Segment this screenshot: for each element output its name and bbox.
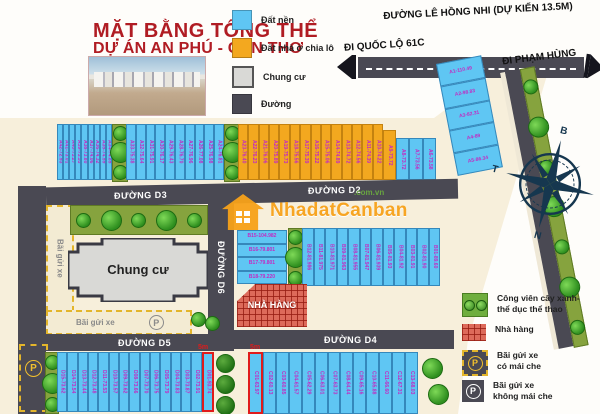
- lot: D11-73.53: [98, 352, 108, 412]
- tree-icon: [76, 213, 91, 228]
- lot-row-a-blue-right: A33-75.38A32-75.64A31-75.91A30-76.17A29-…: [126, 124, 224, 180]
- legend-park-line1: Công viên cây xanh-: [497, 293, 580, 303]
- chung-cu-label: Chung cư: [68, 262, 208, 277]
- p-icon: P: [468, 356, 483, 371]
- road-label-d2: ĐƯỜNG D2: [308, 185, 361, 196]
- tree-icon: [131, 213, 146, 228]
- road-d4: ĐƯỜNG D4: [232, 330, 454, 349]
- lot: A26-77.08: [195, 124, 205, 180]
- lot: A8-73.72: [396, 138, 409, 180]
- arrow-right-icon: [583, 54, 600, 80]
- lot: A32-75.64: [136, 124, 146, 180]
- lot-row-a-blue-left: A42-72.93A41-73.01A40-73.27A39-73.53A38-…: [57, 124, 112, 180]
- legend-park-label: Công viên cây xanh- thể dục thể thao: [497, 293, 580, 314]
- lot: B16-79.801: [237, 244, 287, 258]
- tree-icon: [476, 300, 487, 311]
- road-label-d3: ĐƯỜNG D3: [114, 190, 167, 201]
- lot: A9-73.72: [383, 130, 396, 180]
- lot: B02-81.90: [417, 228, 429, 286]
- lot: B06-81.939: [371, 228, 383, 286]
- lot: D07-73.70: [140, 352, 150, 412]
- lot: B11-81.975: [314, 228, 326, 286]
- lot: B17-79.801: [237, 257, 287, 271]
- legend-item-dat-nen: Đất nền: [232, 10, 294, 30]
- lot-row-a-orange: A23-76.40A22-76.23A21-76.06A20-75.89A19-…: [238, 124, 383, 180]
- lot: A13-74.72: [342, 124, 352, 180]
- lot: C06-63.01: [315, 352, 328, 414]
- legend-swatch-dark: [232, 94, 252, 114]
- tree-icon: [522, 78, 540, 96]
- lot: D15-73.62: [57, 352, 67, 412]
- lot: A21-76.06: [259, 124, 269, 180]
- lot-row-c: C01-63.97C02-60.13C03-60.85C04-61.57C05-…: [248, 352, 418, 414]
- lot: C03-60.85: [276, 352, 289, 414]
- legend-item-duong: Đường: [232, 94, 291, 114]
- lot: A23-76.40: [238, 124, 248, 180]
- tree-icon: [156, 210, 177, 231]
- lot: D14-73.54: [67, 352, 77, 412]
- lot-group-a-side: A8-73.72A7-73.56A6-73.58: [396, 138, 436, 180]
- tree-icon: [553, 238, 571, 256]
- legend-item-parking-covered: P Bãi gửi xe có mái che: [462, 350, 541, 376]
- tree-icon: [191, 312, 206, 327]
- site-plan-map: MẶT BẰNG TỔNG THỂ DỰ ÁN AN PHÚ - CẦN THƠ…: [0, 0, 600, 414]
- lot-row-b-strips: B12-81.986B11-81.975B10-81.971B09-81.963…: [302, 228, 440, 286]
- legend-restaurant-icon: [462, 324, 486, 341]
- lot: A31-75.91: [146, 124, 156, 180]
- bush-icon: [216, 396, 235, 414]
- lot: A28-76.70: [175, 124, 185, 180]
- lot: B15-104.982: [237, 230, 287, 244]
- parking-side-label: Bãi gửi xe: [56, 239, 65, 278]
- legend-item-park: Công viên cây xanh- thể dục thể thao: [462, 293, 580, 317]
- lot: A25-76.98: [204, 124, 214, 180]
- lot: C13-68.03: [405, 352, 418, 414]
- lot: B01-89.60: [429, 228, 441, 286]
- green-strip-chungcu: [70, 205, 208, 235]
- lot: D08-73.66: [129, 352, 139, 412]
- nha-hang-label: NHÀ HÀNG: [248, 300, 297, 310]
- road-label-quoc-lo-61c: ĐI QUỐC LỘ 61C: [344, 37, 425, 54]
- road-label-d5: ĐƯỜNG D5: [118, 338, 171, 348]
- lot: D04-73.83: [171, 352, 181, 412]
- lot: A16-75.22: [311, 124, 321, 180]
- legend-swatch-blue: [232, 10, 252, 30]
- lot: A33-75.38: [126, 124, 136, 180]
- lot: B10-81.971: [325, 228, 337, 286]
- lot: C09-65.16: [353, 352, 366, 414]
- lot: C02-60.13: [263, 352, 276, 414]
- lot: A20-75.89: [269, 124, 279, 180]
- legend-label: Đường: [261, 99, 291, 109]
- lot: D12-73.48: [88, 352, 98, 412]
- legend-cov-line1: Bãi gửi xe: [497, 350, 538, 360]
- lot: C01-63.97: [248, 352, 263, 414]
- legend-restaurant-label: Nhà hàng: [495, 324, 534, 335]
- lot: B09-81.963: [337, 228, 349, 286]
- parking-p-icon: P: [25, 360, 42, 377]
- legend-item-chung-cu: Chung cư: [232, 66, 306, 88]
- road-label-d6: ĐƯỜNG D6: [216, 241, 226, 294]
- lot-a9: A9-73.72: [383, 130, 396, 180]
- tree-icon: [428, 384, 449, 405]
- green-strip-b: [288, 228, 303, 288]
- legend-park-line2: thể dục thể thao: [497, 304, 563, 314]
- lot: D09-73.62: [119, 352, 129, 412]
- lot: B07-81.947: [360, 228, 372, 286]
- lot-row-d: D15-73.62D14-73.54D13-73.44D12-73.48D11-…: [57, 352, 214, 412]
- lot: A11-74.39: [362, 124, 372, 180]
- lot: A22-76.23: [248, 124, 258, 180]
- road-label-d4: ĐƯỜNG D4: [324, 335, 377, 345]
- road-label-le-hong-nhi: ĐƯỜNG LÊ HỒNG NHI (DỰ KIẾN 13.5M): [366, 0, 590, 23]
- lot: B05-81.93: [383, 228, 395, 286]
- legend-parking-covered-icon: P: [462, 350, 488, 376]
- lot: A17-75.39: [300, 124, 310, 180]
- lot: A14-74.89: [331, 124, 341, 180]
- legend-label: Đất nhà ở chia lô: [261, 43, 334, 53]
- legend-parking-open-label: Bãi gửi xe không mái che: [493, 380, 553, 401]
- tree-icon: [422, 358, 443, 379]
- legend-swatch-orange: [232, 38, 252, 58]
- legend-cov-line2: có mái che: [497, 361, 541, 371]
- lot: B03-81.91: [406, 228, 418, 286]
- lot: A18-75.56: [290, 124, 300, 180]
- legend-item-restaurant: Nhà hàng: [462, 324, 534, 341]
- legend-label: Đất nền: [261, 15, 294, 25]
- lot: B04-81.92: [394, 228, 406, 286]
- bush-group: [216, 354, 235, 414]
- tree-icon: [101, 210, 122, 231]
- legend-open-line1: Bãi gửi xe: [493, 380, 534, 390]
- tree-icon: [288, 230, 303, 245]
- lot: A6-73.58: [423, 138, 436, 180]
- site-photo: [88, 56, 206, 116]
- tree-icon: [187, 213, 202, 228]
- parking-bottom-label: Bãi gửi xe: [76, 318, 115, 327]
- parking-strip-bottom: Bãi gửi xe P: [46, 310, 192, 335]
- lot: B18-79.220: [237, 271, 287, 285]
- lot: D05-73.79: [160, 352, 170, 412]
- arrow-left-icon: [337, 55, 356, 79]
- lot: C05-62.29: [302, 352, 315, 414]
- lot: D03-73.87: [181, 352, 191, 412]
- lot: A15-75.06: [321, 124, 331, 180]
- dimension-label-d: 5m: [198, 344, 208, 351]
- lot: B08-81.955: [348, 228, 360, 286]
- lot: D02-73.91: [191, 352, 201, 412]
- lot: A10-74.22: [373, 124, 383, 180]
- tree-icon: [569, 318, 587, 336]
- photo-buildings: [94, 72, 201, 87]
- tree-icon: [288, 271, 303, 286]
- legend-item-parking-open: P Bãi gửi xe không mái che: [462, 380, 553, 402]
- lot: C08-64.44: [340, 352, 353, 414]
- legend-parking-open-icon: P: [462, 380, 484, 402]
- lot: A30-76.17: [155, 124, 165, 180]
- bush-icon: [216, 354, 235, 373]
- legend-park-icon: [462, 293, 488, 317]
- lot: A29-76.43: [165, 124, 175, 180]
- lot: D01-93.74: [202, 352, 214, 412]
- tree-icon: [205, 316, 220, 331]
- lot: C12-67.31: [392, 352, 405, 414]
- lot: D10-73.57: [109, 352, 119, 412]
- dimension-label-c: 5m: [250, 344, 260, 351]
- tree-icon: [464, 300, 475, 311]
- lot: C11-66.60: [379, 352, 392, 414]
- bush-icon: [216, 375, 235, 394]
- lot: D06-73.75: [150, 352, 160, 412]
- lot: C07-63.73: [328, 352, 341, 414]
- legend-parking-covered-label: Bãi gửi xe có mái che: [497, 350, 541, 371]
- chung-cu-building: Chung cư: [68, 238, 208, 302]
- legend-label: Chung cư: [263, 72, 306, 82]
- lot: C10-65.88: [366, 352, 379, 414]
- p-icon: P: [466, 384, 481, 399]
- parking-p-icon: P: [149, 315, 164, 330]
- lot: C04-61.57: [289, 352, 302, 414]
- legend-swatch-gray: [232, 66, 254, 88]
- lot: A7-73.56: [409, 138, 422, 180]
- lot: A19-75.73: [279, 124, 289, 180]
- lot: A27-76.96: [185, 124, 195, 180]
- compass-north-label: B: [559, 125, 569, 137]
- lot: D13-73.44: [78, 352, 88, 412]
- legend-open-line2: không mái che: [493, 391, 553, 401]
- legend-item-dat-nha: Đất nhà ở chia lô: [232, 38, 334, 58]
- lot-group-b-rows: B15-104.982B16-79.801B17-79.801B18-79.22…: [237, 230, 287, 284]
- lot: A12-74.56: [352, 124, 362, 180]
- lot: B12-81.986: [302, 228, 314, 286]
